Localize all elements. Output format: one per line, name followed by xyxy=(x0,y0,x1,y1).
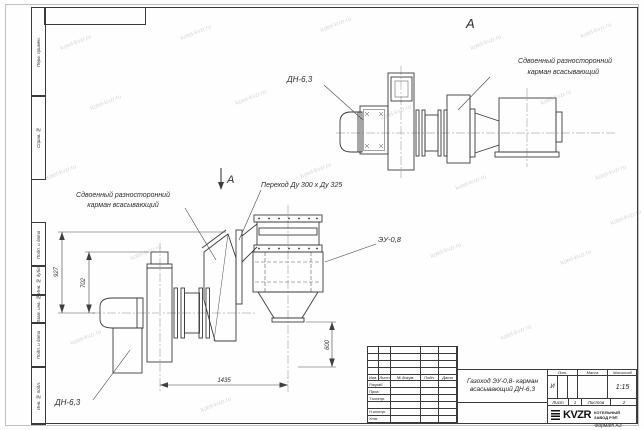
dim-text-1435: 1435 xyxy=(217,378,231,384)
top-suction-pocket xyxy=(447,95,470,163)
main-fan-scroll xyxy=(113,328,142,373)
main-fan-casing xyxy=(147,252,172,362)
dim-text-600: 600 xyxy=(325,339,331,350)
drawing-sheet: kotel-kvzr.ru kotel-kvzr.ru kotel-kvzr.r… xyxy=(0,0,644,430)
top-unit-box xyxy=(495,98,562,157)
top-view-assembly: А ДН-6,3 Сдвоенный разносторонний карман… xyxy=(286,16,616,178)
drawing-canvas: А ДН-6,3 Сдвоенный разносторонний карман… xyxy=(0,0,644,430)
top-fan-inlet-flange xyxy=(360,106,388,154)
section-arrow-a xyxy=(218,168,224,190)
main-transition-duct xyxy=(0,0,322,252)
main-transition-cone xyxy=(242,224,257,262)
top-fan-callout: ДН-6,3 xyxy=(286,75,313,84)
main-pocket-callout-line1: Сдвоенный разносторонний xyxy=(76,191,170,199)
main-pocket-callout-line2: карман всасывающий xyxy=(87,201,159,209)
dim-text-927: 927 xyxy=(54,266,60,277)
main-fan-callout: ДН-6,3 xyxy=(54,398,81,407)
dim-text-702: 702 xyxy=(81,277,87,288)
transition-callout: Переход Ду 300 х Ду 325 xyxy=(261,181,342,189)
unit-callout: ЭУ-0,8 xyxy=(378,235,402,244)
top-motor xyxy=(340,112,362,152)
top-pocket-callout-line1: Сдвоенный разносторонний xyxy=(518,57,612,65)
top-pocket-callout-line2: карман всасывающий xyxy=(528,68,600,76)
view-a-label: А xyxy=(465,16,475,31)
section-a-label: А xyxy=(226,174,234,186)
main-view-assembly: А Сдвоенный разносторонний карман всасыв… xyxy=(0,0,402,407)
